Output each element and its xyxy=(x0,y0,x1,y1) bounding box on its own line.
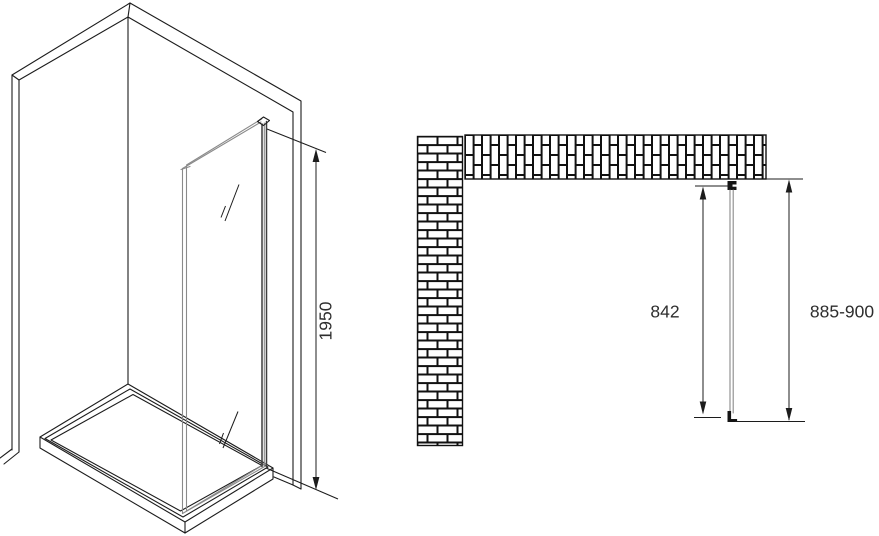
wall-profile xyxy=(258,117,270,467)
glass-panel-plan xyxy=(728,181,738,422)
dimension-glass-width: 842 xyxy=(650,186,732,418)
arrowhead-down-icon xyxy=(786,408,793,421)
overall-width-label: 885-900 xyxy=(810,302,874,322)
shower-tray xyxy=(40,384,273,533)
arrowhead-down-icon xyxy=(700,402,707,415)
dimension-overall-width: 885-900 xyxy=(735,180,874,422)
arrowhead-up-icon xyxy=(313,149,320,162)
extension-line-bottom xyxy=(266,468,338,499)
panel-end-bracket xyxy=(728,411,738,422)
glass-width-label: 842 xyxy=(650,302,679,322)
isometric-view: 1950 xyxy=(0,3,338,533)
back-wall xyxy=(128,3,301,489)
brick-wall-vertical xyxy=(418,137,463,446)
extension-line-top xyxy=(267,129,326,153)
arrowhead-up-icon xyxy=(700,187,707,200)
glass-mark-upper xyxy=(221,185,239,222)
profile-top-cap xyxy=(258,117,270,126)
arrowhead-up-icon xyxy=(786,180,793,193)
plan-view: 842 885-900 xyxy=(418,135,875,446)
brick-wall-horizontal xyxy=(465,135,766,179)
glass-panel xyxy=(181,117,270,514)
height-dimension-label: 1950 xyxy=(316,301,336,340)
technical-drawing-page: 1950 842 xyxy=(0,0,879,536)
shower-enclosure-drawing: 1950 842 xyxy=(0,0,879,536)
dimension-height: 1950 xyxy=(266,129,338,499)
